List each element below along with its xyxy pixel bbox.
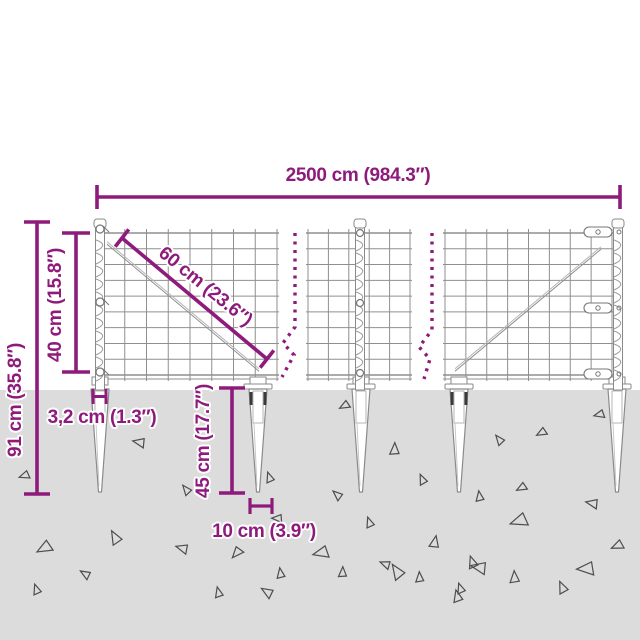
diagram-canvas — [0, 0, 640, 640]
fence-posts — [94, 219, 624, 390]
dim-spike-depth-label: 45 cm (17.7″) — [193, 384, 215, 498]
dim-mesh-height-label: 40 cm (15.8″) — [45, 248, 67, 362]
fence-post — [94, 219, 109, 390]
dim-total-width-label: 2500 cm (984.3″) — [286, 165, 431, 187]
break-line — [419, 233, 432, 379]
dim-spike-anchor-width-label: 10 cm (3.9″) — [212, 521, 316, 543]
product-dimension-diagram: 2500 cm (984.3″) 91 cm (35.8″) 40 cm (15… — [0, 0, 640, 640]
break-line — [282, 233, 295, 377]
dim-spike-top-width-label: 3,2 cm (1.3″) — [48, 407, 157, 429]
fence-post — [584, 219, 624, 390]
fence-post — [354, 219, 366, 390]
mesh-panel — [101, 229, 279, 381]
dim-total-height-label: 91 cm (35.8″) — [5, 343, 27, 457]
